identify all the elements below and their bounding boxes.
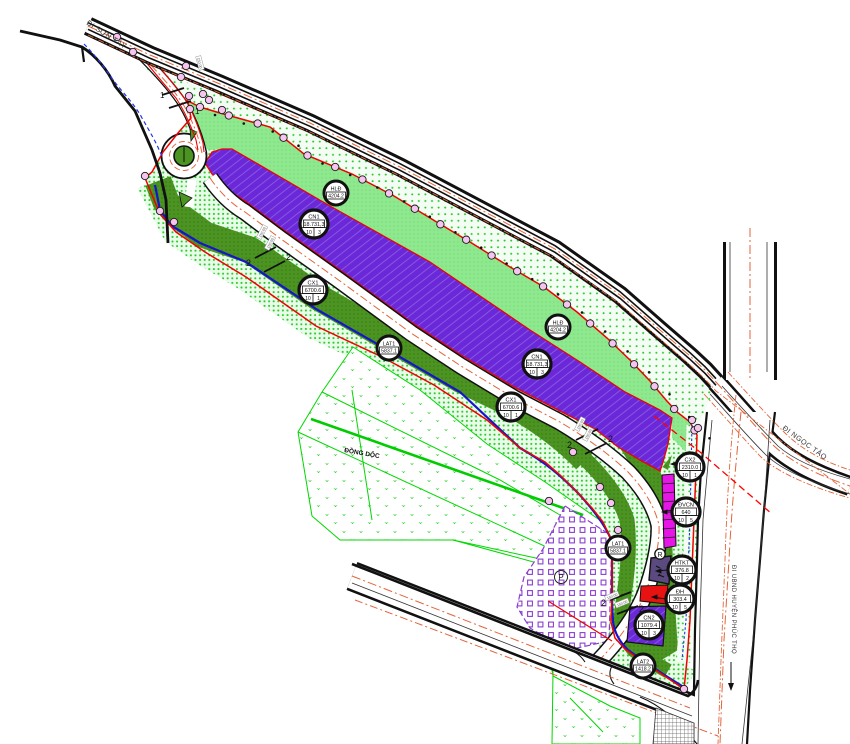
svg-text:R: R	[657, 552, 662, 559]
svg-text:2: 2	[286, 252, 291, 262]
svg-text:640: 640	[682, 510, 691, 516]
svg-text:HTKT: HTKT	[675, 561, 690, 567]
svg-text:P: P	[558, 573, 563, 582]
svg-text:10: 10	[672, 605, 678, 611]
svg-text:10: 10	[305, 296, 311, 302]
svg-text:10: 10	[306, 230, 312, 236]
svg-text:5837.1: 5837.1	[381, 349, 397, 355]
svg-text:LAT1: LAT1	[612, 542, 624, 548]
svg-text:6700.6: 6700.6	[305, 288, 322, 294]
svg-text:2: 2	[601, 598, 606, 608]
svg-text:ĐI UBND HUYỆN PHÚC THỌ: ĐI UBND HUYỆN PHÚC THỌ	[730, 565, 738, 654]
svg-text:376.8: 376.8	[675, 568, 689, 574]
svg-text:2310.0: 2310.0	[682, 465, 699, 471]
svg-text:4204.2: 4204.2	[328, 194, 344, 200]
svg-text:1: 1	[317, 296, 320, 302]
svg-text:10: 10	[503, 413, 509, 419]
svg-text:1079.4: 1079.4	[641, 623, 658, 629]
svg-text:303.4: 303.4	[673, 597, 687, 603]
svg-text:LAT2: LAT2	[637, 660, 649, 666]
svg-text:4204.2: 4204.2	[550, 328, 566, 334]
svg-text:1: 1	[160, 91, 165, 100]
svg-text:18.731,3: 18.731,3	[527, 362, 548, 368]
svg-text:1418.2: 1418.2	[635, 667, 651, 673]
svg-text:18.731,3: 18.731,3	[304, 222, 325, 228]
svg-text:5: 5	[684, 605, 687, 611]
svg-text:3: 3	[653, 631, 656, 637]
svg-text:2: 2	[686, 576, 689, 582]
svg-text:1: 1	[694, 473, 697, 479]
svg-text:1: 1	[195, 107, 200, 116]
svg-text:2: 2	[246, 258, 251, 268]
svg-text:5837.1: 5837.1	[610, 549, 626, 555]
svg-text:10: 10	[674, 576, 680, 582]
svg-text:CN2: CN2	[643, 616, 654, 622]
svg-text:2: 2	[567, 440, 572, 450]
svg-text:2: 2	[608, 434, 613, 444]
svg-text:ĐH: ĐH	[676, 590, 684, 596]
svg-text:5: 5	[690, 518, 693, 524]
svg-text:10: 10	[678, 518, 684, 524]
svg-text:6700.6: 6700.6	[503, 405, 520, 411]
svg-text:3: 3	[541, 370, 544, 376]
svg-text:1: 1	[515, 413, 518, 419]
svg-text:10: 10	[682, 473, 688, 479]
svg-text:10: 10	[529, 370, 535, 376]
svg-text:10: 10	[641, 631, 647, 637]
svg-text:3: 3	[318, 230, 321, 236]
